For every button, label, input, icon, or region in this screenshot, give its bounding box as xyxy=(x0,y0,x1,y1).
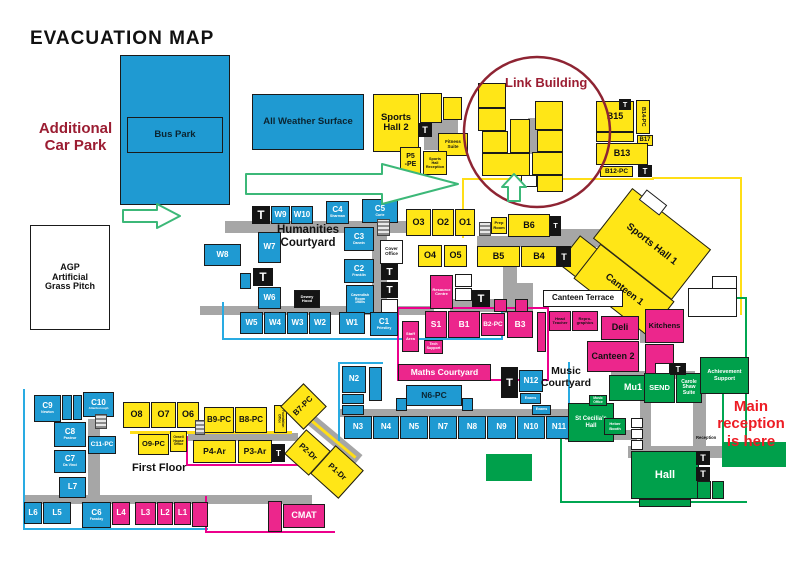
room-label: Hall xyxy=(655,469,675,481)
evacuation-arrow-small-right xyxy=(123,204,180,228)
room-link-g xyxy=(537,130,563,152)
boundary-line xyxy=(222,302,224,340)
room-label: N10 xyxy=(524,423,539,432)
room-b6: B6 xyxy=(508,214,550,237)
room-achievement-support: Achievement Support xyxy=(700,357,749,394)
room-s1: S1 xyxy=(425,311,447,338)
room-label: O1 xyxy=(459,218,471,228)
room-o3: O3 xyxy=(406,209,431,236)
room-n8: N8 xyxy=(458,416,486,439)
room-canteen-terrace: Canteen Terrace xyxy=(543,290,623,307)
label-main-reception: Main reception is here xyxy=(705,398,797,450)
room-c7: C7Da Vinci xyxy=(54,450,86,473)
room-sublabel: Curie xyxy=(376,214,385,218)
room-kitchens: Kitchens xyxy=(645,309,684,343)
room-l2: L2 xyxy=(157,502,173,525)
room-label: L3 xyxy=(141,509,150,518)
room-n10: N10 xyxy=(517,416,545,439)
room-w6: W6 xyxy=(258,287,281,309)
room-label: B15 xyxy=(607,112,624,122)
room-sublabel: Pasteur xyxy=(64,437,77,441)
room-label: W10 xyxy=(294,211,310,220)
room-b9-pc: B9-PC xyxy=(204,407,234,433)
room-label: Mu1 xyxy=(624,383,642,393)
room-dewey-hood: Dewey Hood xyxy=(294,290,320,308)
room-n3: N3 xyxy=(344,416,372,439)
room-label: Sports Hall 1 xyxy=(625,221,680,267)
room-label: CMAT xyxy=(291,511,316,521)
room-n2: N2 xyxy=(342,366,366,393)
room-label: Foundation Office xyxy=(277,410,284,427)
room-reprographics: Repro- graphics xyxy=(572,311,598,331)
room-c2: C2Franklin xyxy=(344,259,374,283)
room-music-office: Music Office xyxy=(589,395,607,406)
room-label: N9 xyxy=(496,423,506,432)
room-label: L7 xyxy=(68,483,77,492)
room-pink-room-3 xyxy=(268,501,282,532)
room-link-e xyxy=(510,119,530,153)
room-b5: B5 xyxy=(477,246,520,267)
room-green-block-2 xyxy=(486,454,532,481)
room-label: O3 xyxy=(412,218,424,228)
room-label: B4 xyxy=(533,252,545,262)
room-sublabel: Faraday xyxy=(90,518,103,522)
room-label: Heber Booth xyxy=(609,422,621,431)
room-link-a xyxy=(478,83,506,108)
toilet-icon: T xyxy=(638,165,652,177)
room-heber-booth: Heber Booth xyxy=(604,418,626,435)
room-sports-hall-2: Sports Hall 2 xyxy=(373,94,419,152)
room-o5: O5 xyxy=(444,245,467,267)
room-label: Deli xyxy=(612,323,629,333)
room-carole-shaw-suite: Carole Shaw Suite xyxy=(676,373,702,403)
room-label: Resource Centre xyxy=(432,288,450,297)
room-link-h xyxy=(532,152,563,175)
room-white-room-1 xyxy=(688,288,737,317)
room-label: O2 xyxy=(437,218,449,228)
room-hall-annex-1 xyxy=(697,481,711,499)
room-hall-annex-2 xyxy=(712,481,724,499)
room-b4: B4 xyxy=(521,246,557,267)
room-label: W1 xyxy=(346,319,358,328)
toilet-icon: T xyxy=(619,99,631,110)
room-w3: W3 xyxy=(287,312,308,334)
room-label: L6 xyxy=(28,509,37,518)
room-label: P2-Dr xyxy=(297,442,319,463)
room-label: P1-Dr xyxy=(326,462,348,483)
room-label: Carole Shaw Suite xyxy=(681,380,697,397)
room-pink-sq-1 xyxy=(494,299,507,312)
room-label: Orwell House Office xyxy=(173,436,183,447)
room-practice-room-2 xyxy=(631,429,643,439)
room-label: P4-Ar xyxy=(203,447,226,456)
room-b3: B3 xyxy=(507,311,533,338)
room-label: L5 xyxy=(52,509,61,518)
room-label: N2 xyxy=(349,375,359,384)
room-label: Bus Park xyxy=(154,130,195,140)
room-label: W9 xyxy=(275,211,287,220)
stairs-icon xyxy=(377,219,390,236)
room-p3-ar: P3-Ar xyxy=(238,440,272,463)
room-label: O8 xyxy=(130,410,142,420)
room-cover-office: Cover Office xyxy=(380,240,403,264)
room-bus-park: Bus Park xyxy=(127,117,223,153)
room-label: B8-PC xyxy=(239,416,263,425)
room-o2: O2 xyxy=(432,209,454,236)
label-reception: Reception xyxy=(696,436,726,441)
toilet-icon: T xyxy=(696,451,710,465)
room-deli: Deli xyxy=(601,316,639,340)
room-w8: W8 xyxy=(204,244,241,266)
room-exams-2: Exams xyxy=(532,405,551,415)
room-staff-area: Staff Area xyxy=(402,321,419,352)
room-label: W6 xyxy=(264,294,276,303)
room-label: Music Office xyxy=(593,397,603,404)
room-sublabel: Da Vinci xyxy=(63,464,77,468)
label-humanities-courtyard: Humanities Courtyard xyxy=(258,224,358,250)
room-o9-pc: O9-PC xyxy=(138,434,169,455)
room-o7: O7 xyxy=(151,402,176,428)
toilet-icon: T xyxy=(381,264,398,280)
room-label: W2 xyxy=(314,319,326,328)
room-hall-strip xyxy=(639,499,691,507)
room-send: SEND xyxy=(644,373,675,403)
room-label: O4 xyxy=(424,251,436,261)
label-link-building: Link Building xyxy=(505,76,625,91)
toilet-icon: T xyxy=(272,444,285,462)
room-n-vert-annex xyxy=(369,367,382,401)
room-n5: N5 xyxy=(400,416,428,439)
room-label: O7 xyxy=(157,410,169,420)
room-tech-support: Tech Support xyxy=(424,340,443,354)
room-c4: C4Sharman xyxy=(326,201,349,224)
room-sublabel: Sharman xyxy=(330,215,345,219)
room-c8: C8Pasteur xyxy=(54,422,86,447)
room-n9: N9 xyxy=(487,416,516,439)
room-label: Maths Courtyard xyxy=(411,368,479,377)
room-label: B7-PC xyxy=(292,395,315,418)
room-label: W3 xyxy=(292,319,304,328)
corridor xyxy=(88,419,100,496)
boundary-line xyxy=(222,338,503,340)
room-b15-annex xyxy=(596,132,634,142)
room-orwell-house-office: Orwell House Office xyxy=(170,431,187,452)
room-o8: O8 xyxy=(123,402,150,428)
boundary-line xyxy=(652,177,742,179)
room-b8-pc: B8-PC xyxy=(235,407,267,433)
room-label: B13 xyxy=(614,149,631,159)
room-w1: W1 xyxy=(339,312,365,334)
toilet-icon: T xyxy=(557,246,571,267)
room-label: Cover Office xyxy=(385,247,398,257)
toilet-icon: T xyxy=(381,282,398,298)
room-label: B14-PC xyxy=(640,107,646,127)
evacuation-map: EVACUATION MAP Bus ParkAll Weather Surfa… xyxy=(0,0,800,565)
room-label: L4 xyxy=(116,509,125,518)
room-white-room-4 xyxy=(455,274,472,287)
stairs-icon xyxy=(195,420,205,435)
room-label: O9-PC xyxy=(142,440,165,448)
room-l7: L7 xyxy=(59,477,86,498)
room-sublabel: Franklin xyxy=(352,274,366,278)
room-pink-sq-2 xyxy=(515,299,528,312)
room-link-b xyxy=(478,108,506,131)
room-label: Dewey Hood xyxy=(301,295,314,304)
room-label: P5 -PE xyxy=(405,153,417,168)
room-label: Sports Hall Reception xyxy=(426,157,444,170)
room-label: Achievement Support xyxy=(707,369,741,381)
room-label: Exams xyxy=(525,397,537,401)
page-title: EVACUATION MAP xyxy=(30,28,214,50)
stairs-icon xyxy=(479,222,491,236)
room-label: N5 xyxy=(409,423,419,432)
room-prep-room: Prep Room xyxy=(491,217,507,234)
room-white-room-2 xyxy=(712,276,737,289)
room-b2-pc: B2-PC xyxy=(481,313,505,336)
room-maths-courtyard: Maths Courtyard xyxy=(398,364,491,381)
room-c6: C6Faraday xyxy=(82,502,111,528)
room-small-blue-annex xyxy=(240,273,251,289)
room-label: All Weather Surface xyxy=(263,117,353,127)
room-label: Head Teacher xyxy=(552,317,567,326)
room-label: N8 xyxy=(467,423,477,432)
room-label: B1 xyxy=(459,320,470,329)
room-o1: O1 xyxy=(455,209,475,236)
label-music-courtyard: Music Courtyard xyxy=(533,365,599,389)
room-label: N4 xyxy=(381,423,391,432)
room-label: N11 xyxy=(552,423,566,432)
room-label: N7 xyxy=(438,423,448,432)
room-sports-hall-reception: Sports Hall Reception xyxy=(423,151,447,175)
boundary-line xyxy=(23,528,208,530)
room-agp-pitch: AGP Artificial Grass Pitch xyxy=(30,225,110,330)
room-label: Cavendish Room 1980s xyxy=(351,294,369,306)
room-link-d xyxy=(482,153,530,176)
room-sublabel: Priestley xyxy=(377,327,392,331)
room-l5: L5 xyxy=(43,502,71,524)
label-additional-car-park: Additional Car Park xyxy=(18,120,133,155)
room-c-strip-1 xyxy=(62,395,72,420)
room-label: Kitchens xyxy=(649,322,681,330)
room-resource-centre: Resource Centre xyxy=(430,275,453,309)
room-l4: L4 xyxy=(112,502,130,525)
toilet-icon: T xyxy=(252,206,270,224)
room-white-room-5 xyxy=(455,288,472,301)
room-label: W8 xyxy=(217,251,229,260)
room-label: Sports Hall 2 xyxy=(381,113,411,134)
room-label: B3 xyxy=(515,320,526,329)
toilet-icon: T xyxy=(472,290,490,307)
toilet-icon: T xyxy=(418,123,432,137)
room-sublabel: Attenborough xyxy=(89,407,109,410)
room-exams-1: Exams xyxy=(520,393,541,404)
room-c-strip-2 xyxy=(73,395,82,420)
room-all-weather-surface: All Weather Surface xyxy=(252,94,364,150)
room-w4: W4 xyxy=(264,312,286,334)
room-link-f xyxy=(535,101,563,130)
room-label: L2 xyxy=(160,509,169,518)
room-practice-room-1 xyxy=(631,418,643,428)
room-label: B2-PC xyxy=(483,321,503,328)
room-l3: L3 xyxy=(135,502,156,525)
room-sublabel: Newton xyxy=(41,411,54,415)
room-pink-room-2 xyxy=(192,502,208,527)
boundary-line xyxy=(740,178,742,315)
toilet-icon: T xyxy=(501,367,518,398)
room-label: O5 xyxy=(449,251,461,261)
room-label: Exams xyxy=(536,408,548,412)
toilet-icon: T xyxy=(253,268,273,286)
room-w10: W10 xyxy=(291,206,313,224)
room-label: N3 xyxy=(353,423,363,432)
room-cmat: CMAT xyxy=(283,504,325,528)
room-head-teacher: Head Teacher xyxy=(549,311,571,331)
room-n2-annex-1 xyxy=(342,394,364,404)
room-p5-pe: P5 -PE xyxy=(400,147,421,174)
room-label: Repro- graphics xyxy=(577,317,594,326)
room-label: B12-PC xyxy=(605,168,628,175)
toilet-icon: T xyxy=(670,363,686,375)
room-c9: C9Newton xyxy=(34,395,61,422)
room-sh2-annex-b xyxy=(443,97,462,120)
room-l1: L1 xyxy=(174,502,191,525)
room-label: SEND xyxy=(649,384,670,392)
room-w9: W9 xyxy=(271,206,290,224)
room-label: Tech Support xyxy=(427,343,441,351)
room-label: C11-PC xyxy=(91,441,114,448)
room-p4-ar: P4-Ar xyxy=(193,440,236,463)
room-label: S1 xyxy=(431,320,441,329)
room-label: Prep Room xyxy=(493,221,504,230)
room-label: N6-PC xyxy=(421,391,447,400)
toilet-icon: T xyxy=(550,216,561,236)
room-cavendish-room: Cavendish Room 1980s xyxy=(346,285,374,314)
room-n6-wing-2 xyxy=(462,398,473,411)
room-pink-vert xyxy=(537,312,546,352)
room-sh2-annex-a xyxy=(420,93,442,123)
room-link-c xyxy=(482,131,508,153)
room-label: L1 xyxy=(178,509,187,518)
room-n6-pc: N6-PC xyxy=(406,385,462,406)
room-label: Fitness Suite xyxy=(445,140,461,150)
stairs-icon xyxy=(95,414,107,429)
room-label: W5 xyxy=(246,319,258,328)
room-n7: N7 xyxy=(429,416,457,439)
room-label: B5 xyxy=(493,252,505,262)
room-label: P3-Ar xyxy=(244,447,267,456)
room-c11-pc: C11-PC xyxy=(88,436,116,454)
room-label: O6 xyxy=(182,410,194,420)
room-label: Staff Area xyxy=(406,332,415,341)
room-b12-pc: B12-PC xyxy=(600,166,633,177)
room-label: St Cecilia's Hall xyxy=(575,416,607,429)
room-practice-room-3 xyxy=(631,440,643,450)
room-o4: O4 xyxy=(418,245,442,267)
room-label: Canteen 2 xyxy=(591,352,634,362)
toilet-icon: T xyxy=(696,467,710,481)
label-first-floor: First Floor xyxy=(132,462,212,475)
room-w5: W5 xyxy=(240,312,263,334)
room-label: B6 xyxy=(523,221,535,231)
room-c1: C1Priestley xyxy=(370,312,398,336)
room-b1: B1 xyxy=(448,311,480,338)
room-label: W4 xyxy=(269,319,281,328)
room-w2: W2 xyxy=(309,312,331,334)
room-white-room-6 xyxy=(655,363,670,374)
room-b14-pc: B14-PC xyxy=(636,100,650,134)
room-link-white xyxy=(521,175,537,187)
boundary-line xyxy=(338,362,383,364)
room-link-i xyxy=(537,175,563,192)
room-b13: B13 xyxy=(596,143,648,165)
room-l6: L6 xyxy=(24,502,42,524)
room-n4: N4 xyxy=(373,416,399,439)
room-n6-wing-1 xyxy=(396,398,407,411)
room-label: AGP Artificial Grass Pitch xyxy=(45,263,95,293)
boundary-line xyxy=(338,362,340,441)
room-label: Canteen Terrace xyxy=(552,294,614,303)
room-n2-annex-2 xyxy=(342,405,364,415)
room-hall: Hall xyxy=(631,451,699,499)
room-label: B9-PC xyxy=(207,416,231,425)
